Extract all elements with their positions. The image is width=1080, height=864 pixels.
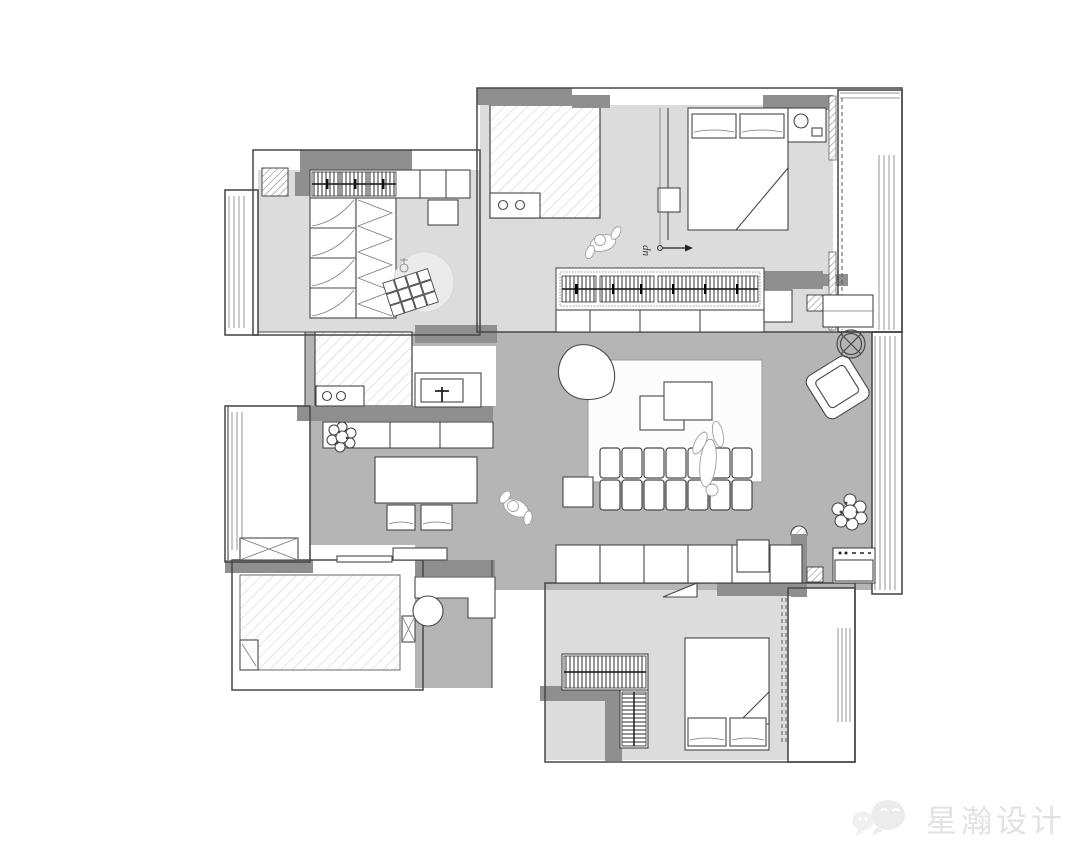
side-table-square	[563, 477, 593, 507]
pocket-door-panel	[393, 548, 447, 560]
dining-table	[375, 457, 477, 503]
hall-cabinet	[764, 290, 792, 322]
brand-name: 星瀚设计	[926, 796, 1066, 841]
flue-southeast	[807, 567, 823, 582]
floorplan-page: up	[0, 0, 1080, 864]
balcony-southeast	[788, 588, 855, 762]
kitchen-counter	[316, 386, 364, 406]
bed-bench	[658, 188, 680, 212]
bay-window-east	[872, 332, 902, 594]
dining-chair	[387, 505, 415, 530]
pillow	[688, 718, 726, 746]
flue-northwest	[262, 168, 288, 196]
pillow	[730, 718, 766, 746]
up-label: up	[639, 245, 651, 257]
bathroom-south	[240, 575, 400, 670]
brand-watermark: 星瀚设计	[850, 794, 1066, 842]
tv-on-sideboard	[737, 540, 769, 572]
wechat-bubbles-icon	[850, 794, 912, 842]
pillow	[740, 114, 784, 138]
pocket-door-panel	[337, 556, 392, 562]
shoe-cabinet-row	[556, 310, 764, 332]
flue-east	[807, 295, 823, 311]
kids-nightstand	[428, 200, 458, 225]
floor-plan-drawing: up	[0, 0, 1080, 864]
dining-chair	[421, 505, 452, 530]
round-basin	[413, 596, 443, 626]
coffee-table	[664, 382, 712, 420]
curtain-strip-top	[829, 96, 836, 160]
pillow	[692, 114, 736, 138]
bathroom-north-fixtures	[490, 193, 540, 218]
